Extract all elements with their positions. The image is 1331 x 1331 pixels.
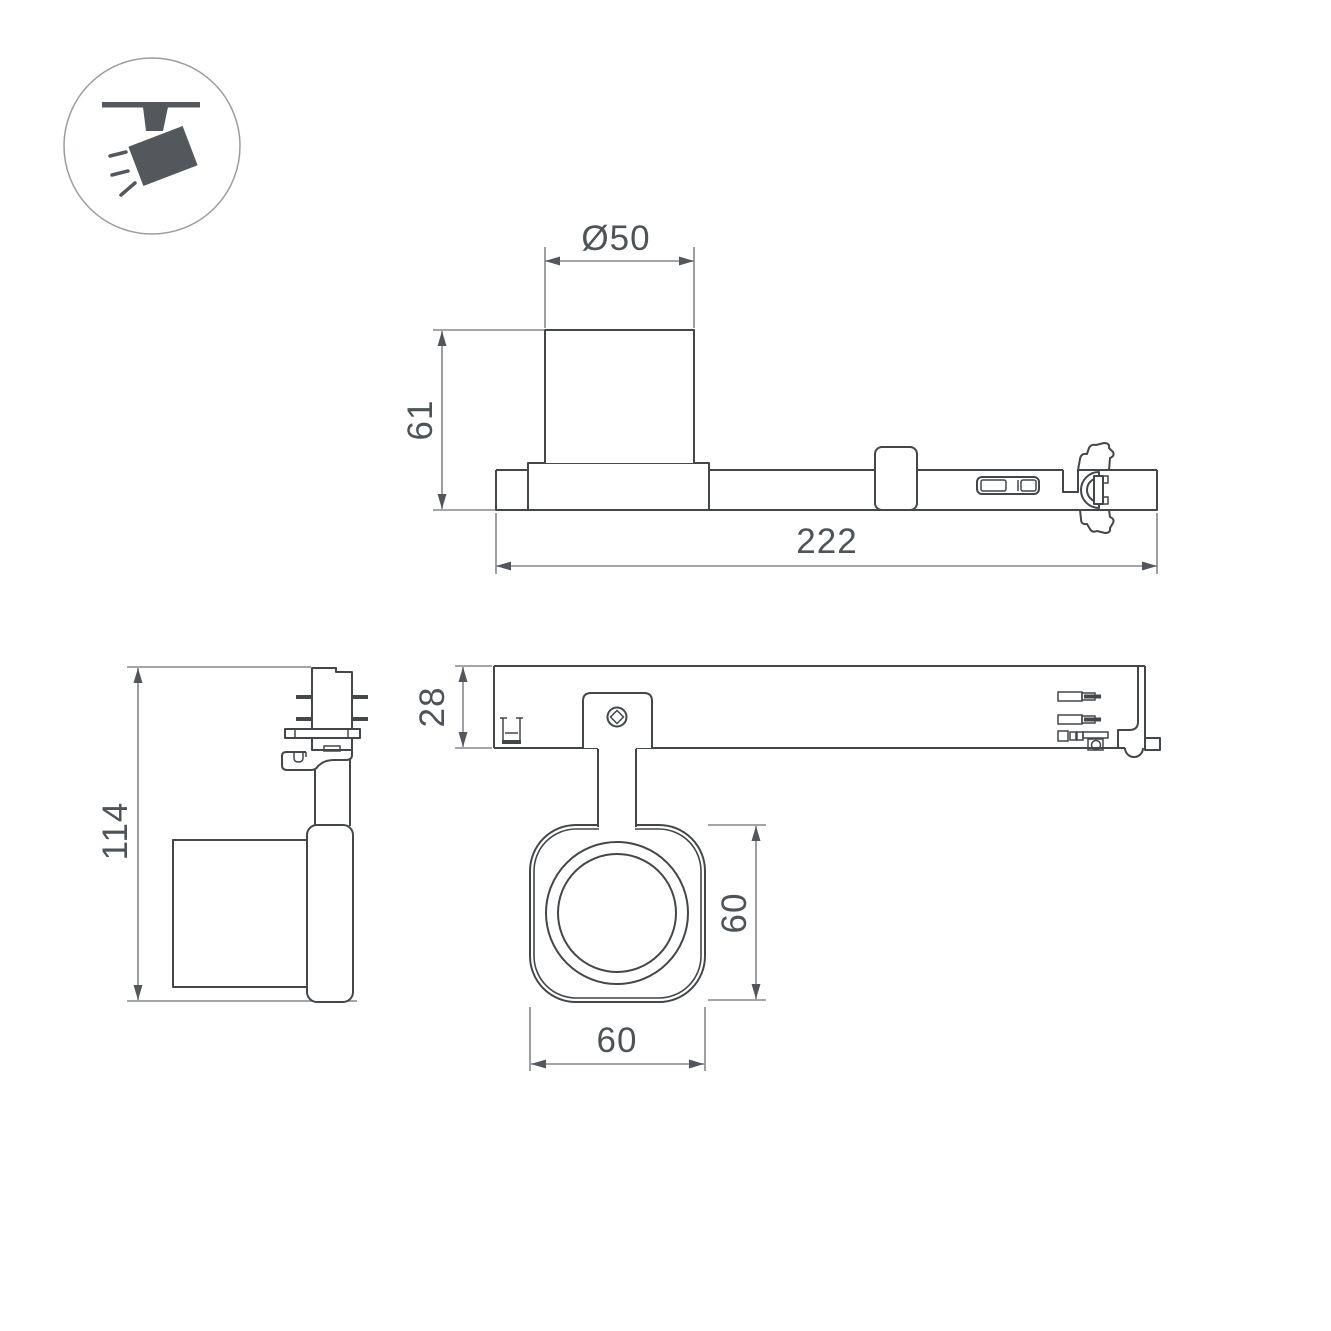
dim-head-height-60: 60 bbox=[708, 825, 766, 1000]
technical-drawing-page: Ø50 61 222 bbox=[0, 0, 1331, 1331]
end-step bbox=[1145, 738, 1160, 750]
stem-side bbox=[315, 758, 350, 826]
dim-diameter-50: Ø50 bbox=[545, 219, 694, 328]
dim-diameter-label: Ø50 bbox=[581, 219, 650, 258]
latch-wing-lower bbox=[1080, 510, 1114, 533]
adapter-body bbox=[312, 668, 352, 729]
dim-bar-height-28: 28 bbox=[413, 666, 492, 748]
adapter-lower-block bbox=[312, 738, 352, 750]
roller-bulge bbox=[1125, 748, 1143, 757]
mount-bracket bbox=[583, 693, 652, 748]
dim-length-222: 222 bbox=[496, 513, 1157, 574]
slide-switch bbox=[977, 477, 1039, 494]
head-outer-outline bbox=[530, 825, 705, 1002]
lamp-cylinder bbox=[545, 330, 694, 463]
track-light-icon bbox=[64, 58, 240, 234]
dim-bar-height-label: 28 bbox=[413, 687, 452, 728]
end-view: 114 bbox=[96, 667, 368, 1002]
lamp-head-front bbox=[530, 749, 705, 1002]
latch-bar bbox=[1094, 476, 1103, 504]
track-adapter-section bbox=[282, 668, 368, 770]
dim-height-label: 61 bbox=[401, 400, 440, 441]
track-spotlight-dimension-drawing: Ø50 61 222 bbox=[0, 0, 1331, 1331]
dim-length-label: 222 bbox=[796, 522, 857, 561]
pivot-knob bbox=[875, 447, 917, 510]
locking-hook bbox=[282, 748, 352, 770]
dim-total-height-label: 114 bbox=[96, 802, 135, 861]
lens-barrel-side bbox=[173, 840, 307, 987]
lamp-base-block bbox=[528, 463, 709, 510]
latch-wing-upper bbox=[1078, 443, 1114, 470]
dim-head-width-60: 60 bbox=[530, 1007, 705, 1071]
track-rail-glyph bbox=[102, 102, 200, 108]
dim-head-width-label: 60 bbox=[597, 1021, 638, 1060]
dim-head-height-label: 60 bbox=[715, 893, 754, 934]
lamp-head-side bbox=[307, 825, 353, 1002]
side-view: Ø50 61 222 bbox=[401, 219, 1157, 574]
front-view: 28 60 60 bbox=[413, 666, 1160, 1071]
